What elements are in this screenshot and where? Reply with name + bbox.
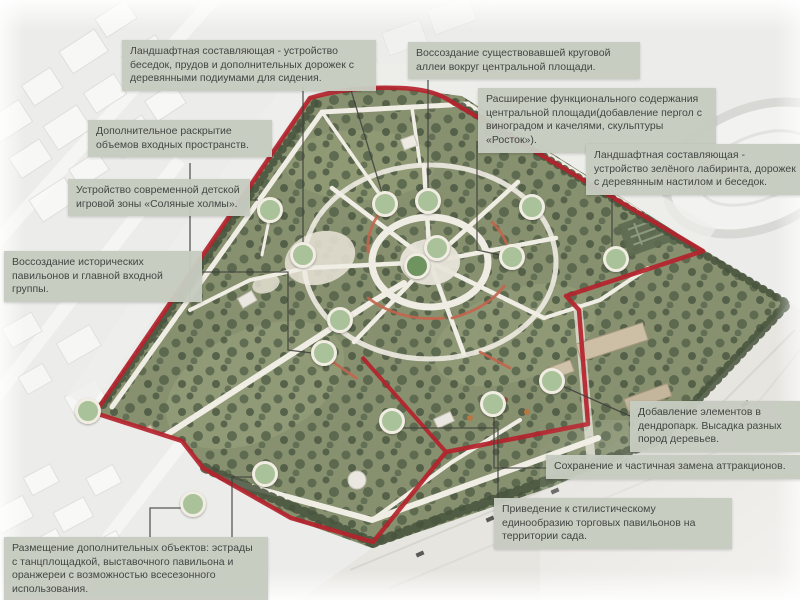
annotation-dendropark: Добавление элементов в дендропарк. Высад… bbox=[630, 401, 800, 452]
annotation-stage-orangery: Размещение дополнительных объектов: эстр… bbox=[4, 537, 268, 600]
slide: Ландшафтная составляющая - устройство бе… bbox=[0, 0, 800, 600]
annotation-central-square: Расширение функционального содержания це… bbox=[478, 88, 716, 153]
annotation-attractions: Сохранение и частичная замена аттракцион… bbox=[546, 455, 800, 479]
annotation-gazebos-ponds: Ландшафтная составляющая - устройство бе… bbox=[122, 40, 376, 91]
annotation-circular-alley: Воссоздание существовавшей круговой алле… bbox=[408, 42, 640, 79]
annotation-playground: Устройство современной детской игровой з… bbox=[68, 179, 250, 216]
annotation-trade-pavilions: Приведение к стилистическому единообрази… bbox=[494, 498, 732, 549]
annotation-green-labyrinth: Ландшафтная составляющая - устройство зе… bbox=[586, 144, 800, 195]
annotation-historic-pavilions: Воссоздание исторических павильонов и гл… bbox=[4, 251, 202, 302]
annotation-entrance-spaces: Дополнительное раскрытие объемов входных… bbox=[88, 120, 272, 157]
